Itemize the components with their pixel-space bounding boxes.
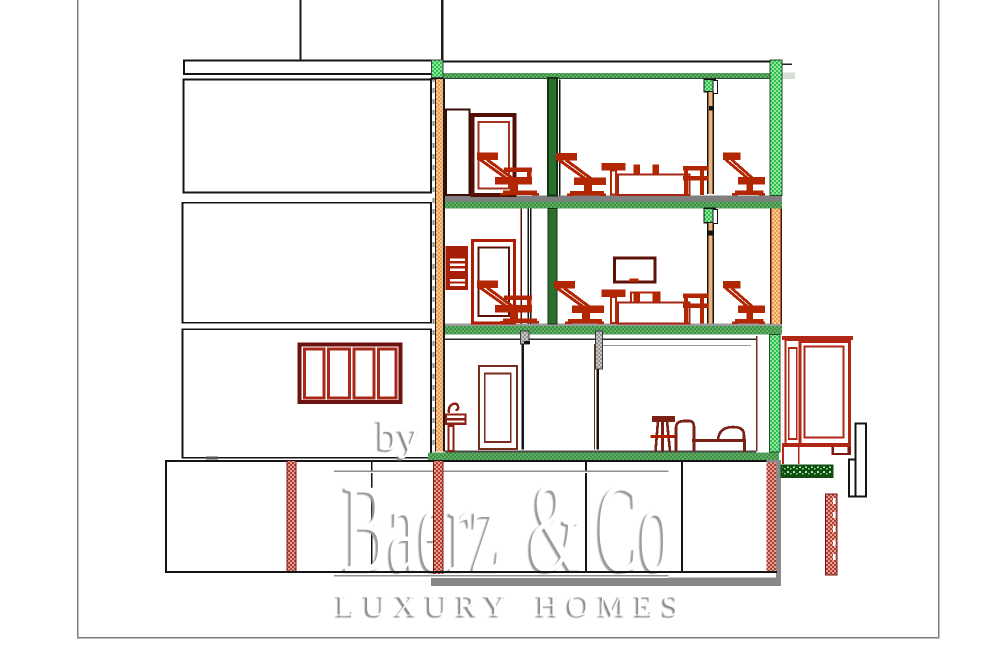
svg-text:by: by — [377, 414, 419, 460]
svg-text:LUXURY HOMES: LUXURY HOMES — [336, 588, 688, 623]
